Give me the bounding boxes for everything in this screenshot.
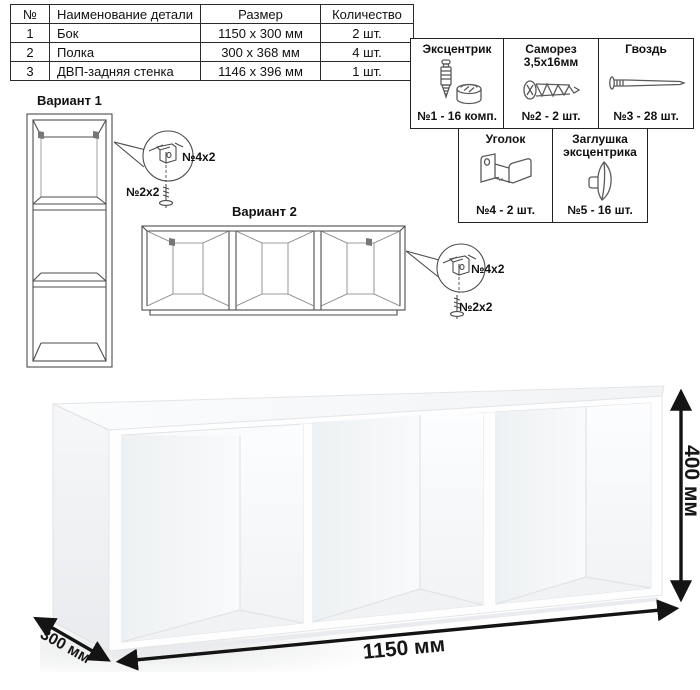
variant2-screw-qty-label: №2х2 <box>459 300 492 314</box>
screw-icon <box>520 70 582 110</box>
table-row: 1 Бок 1150 x 300 мм 2 шт. <box>11 24 414 43</box>
cell-quantity: 1 шт. <box>321 62 414 81</box>
hardware-count: №2 - 2 шт. <box>522 110 581 123</box>
hardware-cell-eccentric: Эксцентрик №1 - 16 комп. <box>410 38 504 129</box>
hardware-count: №5 - 16 шт. <box>567 204 633 217</box>
bracket-detail-icon <box>149 143 183 182</box>
hardware-count: №1 - 16 комп. <box>417 110 497 123</box>
nail-icon <box>606 56 686 109</box>
compartment-opening <box>496 403 651 604</box>
hardware-title: Саморез 3,5х16мм <box>524 43 578 70</box>
parts-table-header-row: № Наименование детали Размер Количество <box>11 5 414 24</box>
variant1-title: Вариант 1 <box>37 93 102 108</box>
variant2-bracket-qty-label: №4х2 <box>471 262 504 276</box>
header-quantity: Количество <box>321 5 414 24</box>
variant1-screw-qty-label: №2х2 <box>126 185 159 199</box>
assembly-instruction-sheet: { "parts_table": { "headers": ["№", "Наи… <box>0 0 700 690</box>
variant1-bracket-qty-label: №4х2 <box>182 150 215 164</box>
hardware-cell-screw: Саморез 3,5х16мм №2 - 2 шт. <box>503 38 599 129</box>
cell-name: Бок <box>50 24 201 43</box>
cam-dowel-icon <box>428 56 486 109</box>
cell-size: 1146 x 396 мм <box>201 62 321 81</box>
screw-detail-icon <box>160 184 173 208</box>
hardware-title: Эксцентрик <box>423 43 492 56</box>
variant2-shelf-drawing <box>142 226 405 315</box>
header-size: Размер <box>201 5 321 24</box>
variant1-bookcase-drawing <box>27 114 112 367</box>
height-dimension-label: 400 мм <box>679 445 700 517</box>
cell-name: ДВП-задняя стенка <box>50 62 201 81</box>
variant2-title: Вариант 2 <box>232 204 297 219</box>
table-row: 3 ДВП-задняя стенка 1146 x 396 мм 1 шт. <box>11 62 414 81</box>
header-number: № <box>11 5 50 24</box>
corner-bracket-icon <box>473 146 539 203</box>
compartment-opening <box>313 413 483 622</box>
table-row: 2 Полка 300 x 368 мм 4 шт. <box>11 43 414 62</box>
hardware-title: Уголок <box>486 133 526 146</box>
cell-size: 300 x 368 мм <box>201 43 321 62</box>
cell-name: Полка <box>50 43 201 62</box>
hardware-cell-nail: Гвоздь №3 - 28 шт. <box>598 38 694 129</box>
cam-cap-icon <box>578 160 622 204</box>
cell-size: 1150 x 300 мм <box>201 24 321 43</box>
hardware-title: Гвоздь <box>625 43 667 56</box>
cell-number: 2 <box>11 43 50 62</box>
hardware-count: №3 - 28 шт. <box>613 110 679 123</box>
hardware-cell-corner-bracket: Уголок №4 - 2 шт. <box>458 128 553 223</box>
header-name: Наименование детали <box>50 5 201 24</box>
hardware-cell-cam-cap: Заглушка эксцентрика №5 - 16 шт. <box>552 128 648 223</box>
hardware-title: Заглушка эксцентрика <box>563 133 637 160</box>
cell-number: 1 <box>11 24 50 43</box>
compartment-opening <box>122 424 303 642</box>
parts-table: № Наименование детали Размер Количество … <box>10 4 414 81</box>
cell-quantity: 4 шт. <box>321 43 414 62</box>
cell-number: 3 <box>11 62 50 81</box>
hardware-count: №4 - 2 шт. <box>476 204 535 217</box>
cell-quantity: 2 шт. <box>321 24 414 43</box>
